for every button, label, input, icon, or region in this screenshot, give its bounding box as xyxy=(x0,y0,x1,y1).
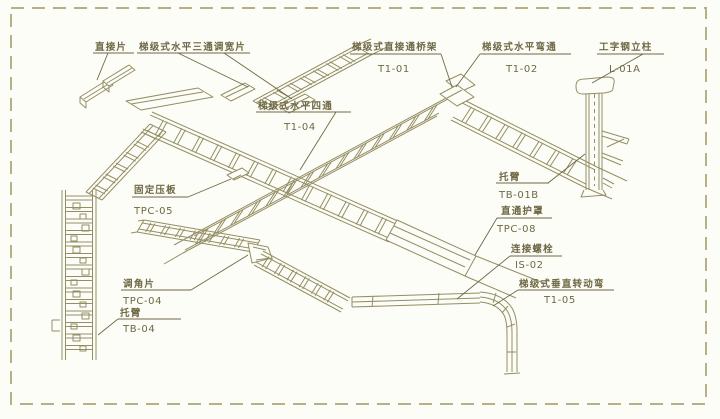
code-bracket-arm-column: TB-01B xyxy=(498,190,539,201)
label-bracket-arm-column: 托臂 xyxy=(499,171,520,183)
code-fixing-clamp: TPC-05 xyxy=(133,206,173,217)
code-horizontal-bend: T1-02 xyxy=(505,64,538,75)
code-horizontal-cross: T1-04 xyxy=(283,122,316,133)
border-rect xyxy=(11,8,706,404)
code-connecting-bolt: IS-02 xyxy=(515,260,544,271)
label-fixing-clamp: 固定压板 xyxy=(134,184,177,196)
code-i-beam-column: L-01A xyxy=(609,64,641,75)
thin-tray-run xyxy=(352,292,520,374)
main-descending-run xyxy=(141,112,400,242)
label-straight-through-tray: 梯级式直接通桥架 xyxy=(352,41,438,53)
label-horizontal-bend: 梯级式水平弯通 xyxy=(482,41,557,53)
label-tee-width-adjuster: 梯级式水平三通调宽片 xyxy=(139,41,246,53)
descending-ladder-section xyxy=(254,251,350,312)
code-angle-adjuster: TPC-04 xyxy=(122,296,162,307)
label-connecting-bolt: 连接螺栓 xyxy=(511,243,554,255)
code-straight-through-tray: T1-01 xyxy=(377,64,410,75)
label-angle-adjuster: 调角片 xyxy=(123,278,155,290)
label-bracket-arm-ladder: 托臂 xyxy=(120,307,141,319)
straight-cover-slab xyxy=(386,220,476,276)
horizontal-bend-piece xyxy=(440,74,475,106)
i-beam-column xyxy=(576,77,629,197)
label-horizontal-cross: 梯级式水平四通 xyxy=(258,100,333,112)
horizontal-ladder-section xyxy=(131,220,260,252)
corner-joint-piece xyxy=(248,243,272,263)
label-i-beam-column: 工字钢立柱 xyxy=(599,41,653,53)
column-descent-run xyxy=(451,100,597,187)
open-rail-tips xyxy=(164,39,627,298)
vertical-cable-ladder xyxy=(52,190,96,360)
code-vertical-rotating-bend: T1-05 xyxy=(543,295,576,306)
code-straight-cover: TPC-08 xyxy=(496,224,536,235)
label-direct-connector: 直接片 xyxy=(95,41,127,53)
code-bracket-arm-ladder: TB-04 xyxy=(122,324,155,335)
diagram-canvas: 直接片 梯级式水平三通调宽片 梯级式直接通桥架 T1-01 梯级式水平弯通 T1… xyxy=(0,0,720,419)
label-straight-cover: 直通护罩 xyxy=(501,205,544,217)
label-vertical-rotating-bend: 梯级式垂直转动弯 xyxy=(519,278,605,290)
dashed-page-border xyxy=(11,8,706,404)
